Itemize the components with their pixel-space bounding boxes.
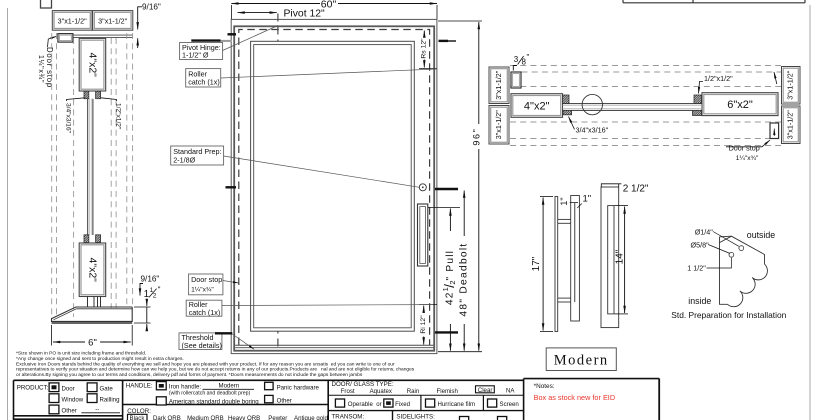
svg-text:Other: Other	[62, 407, 77, 414]
svg-text:421/2" Pull: 421/2" Pull	[441, 250, 457, 305]
svg-text:outside: outside	[747, 230, 775, 240]
svg-text:3"x1-1/2": 3"x1-1/2"	[786, 110, 795, 140]
svg-text:(with rollercatch and deadbolt: (with rollercatch and deadbolt prep)	[169, 391, 251, 397]
svg-text:4"x2": 4"x2"	[87, 258, 99, 283]
svg-text:4"x2": 4"x2"	[524, 101, 550, 113]
svg-text:Clear: Clear	[478, 387, 493, 394]
svg-text:Rs 12": Rs 12"	[421, 38, 428, 59]
svg-text:1 1/2": 1 1/2"	[687, 264, 706, 273]
svg-text:3/4"x3/16": 3/4"x3/16"	[65, 103, 72, 134]
svg-text:PRODUCT:: PRODUCT:	[17, 385, 49, 392]
svg-text:2: 2	[153, 293, 157, 300]
svg-text:1¼"x¾": 1¼"x¾"	[37, 55, 44, 83]
svg-text:2 1/2": 2 1/2"	[623, 184, 649, 195]
svg-text:Door: Door	[62, 385, 75, 392]
svg-text:Rain: Rain	[407, 388, 420, 395]
svg-text:Heavy ORB: Heavy ORB	[228, 415, 260, 420]
svg-text:Std. Preparation for Installat: Std. Preparation for Installation	[671, 310, 786, 320]
svg-text:48" Deadbolt: 48" Deadbolt	[459, 242, 470, 316]
svg-text:Aquatex: Aquatex	[370, 388, 392, 395]
svg-text:Pewter: Pewter	[268, 415, 287, 420]
svg-text:1": 1"	[559, 197, 569, 205]
svg-text:Railling: Railling	[100, 396, 120, 403]
svg-text:14": 14"	[615, 249, 626, 264]
svg-text:17": 17"	[531, 256, 542, 271]
svg-text:Screen: Screen	[500, 401, 519, 408]
svg-text:catch (1x): catch (1x)	[189, 308, 221, 317]
svg-text:*Any change once signed and se: *Any change once signed and sent to prod…	[16, 356, 184, 362]
svg-text:inside: inside	[688, 296, 711, 306]
svg-text:representatives to verify your: representatives to verify your situation…	[16, 367, 415, 373]
svg-text:American standard double borin: American standard double boring	[169, 398, 259, 405]
svg-text:3"x1-1/2": 3"x1-1/2"	[58, 17, 88, 26]
svg-text:1¼"x¾": 1¼"x¾"	[736, 155, 759, 162]
svg-text:Dark ORB: Dark ORB	[153, 415, 181, 420]
svg-text:Gate: Gate	[100, 385, 114, 392]
svg-text:Modern: Modern	[219, 382, 240, 389]
svg-text:": "	[527, 53, 530, 62]
svg-text:--: --	[95, 406, 99, 413]
svg-text:TRANSOM:: TRANSOM:	[332, 414, 365, 420]
svg-text:*Size shown in PO is unit size: *Size shown in PO is unit size including…	[16, 351, 146, 357]
svg-text:NA: NA	[506, 387, 515, 394]
svg-text:Flemish: Flemish	[437, 388, 458, 395]
svg-text:Ø5/8": Ø5/8"	[691, 241, 710, 250]
svg-text:Medium ORB: Medium ORB	[187, 415, 224, 420]
svg-text:6": 6"	[88, 337, 97, 348]
svg-text:6"x2": 6"x2"	[727, 99, 753, 111]
svg-text:2-1/8Ø: 2-1/8Ø	[173, 155, 195, 164]
svg-text:(See details): (See details)	[182, 341, 222, 350]
svg-text:Door stop: Door stop	[729, 144, 760, 153]
svg-text:Other: Other	[277, 397, 292, 404]
svg-text:1¼"x¾": 1¼"x¾"	[191, 286, 214, 293]
svg-text:Window: Window	[62, 396, 84, 403]
svg-text:96": 96"	[471, 128, 481, 146]
svg-text:3"x1-1/2": 3"x1-1/2"	[786, 70, 795, 100]
svg-text:or alterations.By signing you: or alterations.By signing you agree to o…	[16, 372, 363, 378]
svg-text:Black: Black	[130, 415, 146, 420]
svg-text:3"x1-1/2": 3"x1-1/2"	[494, 110, 503, 140]
svg-text:3"x1-1/2": 3"x1-1/2"	[494, 70, 503, 100]
svg-text:9/16": 9/16"	[141, 275, 160, 284]
svg-text:1": 1"	[583, 194, 592, 205]
svg-text:Hurricane film: Hurricane film	[438, 401, 476, 408]
svg-text:Box as stock new for EID: Box as stock new for EID	[534, 393, 616, 402]
svg-text:3: 3	[514, 55, 519, 64]
svg-text:*Notes:: *Notes:	[534, 383, 555, 390]
svg-text:Frost: Frost	[341, 388, 355, 395]
svg-text:": "	[158, 286, 161, 295]
svg-text:SIDELIGHTS:: SIDELIGHTS:	[396, 414, 435, 420]
svg-text:Iron handle:: Iron handle:	[169, 384, 201, 391]
svg-text:Modern: Modern	[554, 353, 609, 369]
svg-text:4"x2": 4"x2"	[87, 53, 99, 78]
svg-text:Ri 12": Ri 12"	[420, 315, 427, 334]
svg-text:3/4"x3/16": 3/4"x3/16"	[576, 126, 609, 135]
svg-text:Antique gold: Antique gold	[294, 415, 328, 420]
svg-text:9/16": 9/16"	[142, 3, 161, 12]
svg-text:HANDLE:: HANDLE:	[126, 382, 153, 389]
svg-text:Operable or: Operable or	[348, 401, 382, 408]
svg-text:Pivot 12": Pivot 12"	[284, 9, 326, 20]
svg-text:1/2"x1/2": 1/2"x1/2"	[704, 74, 733, 83]
svg-text:Ø1/4": Ø1/4"	[695, 228, 714, 237]
svg-text:1-1/2" Ø: 1-1/2" Ø	[182, 51, 209, 60]
svg-text:1/2"x1/2": 1/2"x1/2"	[115, 103, 122, 130]
svg-text:Exclusive Iron Doors stands be: Exclusive Iron Doors stands behind the q…	[16, 362, 395, 368]
svg-text:Door stop: Door stop	[45, 47, 54, 88]
svg-text:Fixed: Fixed	[395, 401, 410, 408]
svg-text:Panic hardware: Panic hardware	[277, 384, 320, 391]
svg-text:Door stop: Door stop	[191, 275, 222, 284]
svg-text:catch (1x): catch (1x)	[188, 78, 220, 87]
svg-text:3"x1-1/2": 3"x1-1/2"	[98, 17, 128, 26]
